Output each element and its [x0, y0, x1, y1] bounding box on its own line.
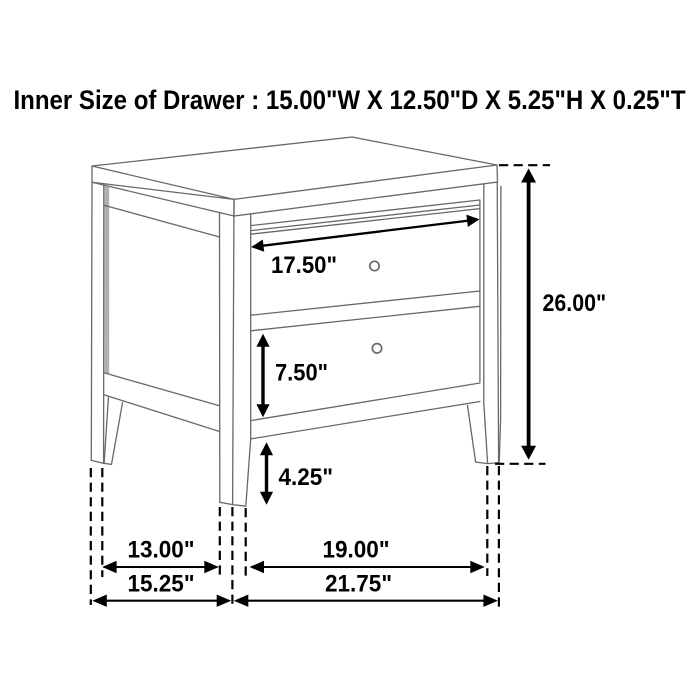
svg-text:13.00": 13.00": [128, 537, 195, 564]
svg-text:21.75": 21.75": [325, 571, 392, 598]
svg-text:26.00": 26.00": [543, 290, 607, 317]
svg-text:19.00": 19.00": [323, 537, 390, 564]
svg-text:7.50": 7.50": [275, 359, 328, 386]
svg-text:17.50": 17.50": [271, 252, 337, 279]
svg-text:15.25": 15.25": [128, 571, 195, 598]
svg-text:Inner Size of Drawer : 15.00"W: Inner Size of Drawer : 15.00"W X 12.50"D…: [14, 85, 686, 115]
svg-text:4.25": 4.25": [279, 464, 334, 491]
